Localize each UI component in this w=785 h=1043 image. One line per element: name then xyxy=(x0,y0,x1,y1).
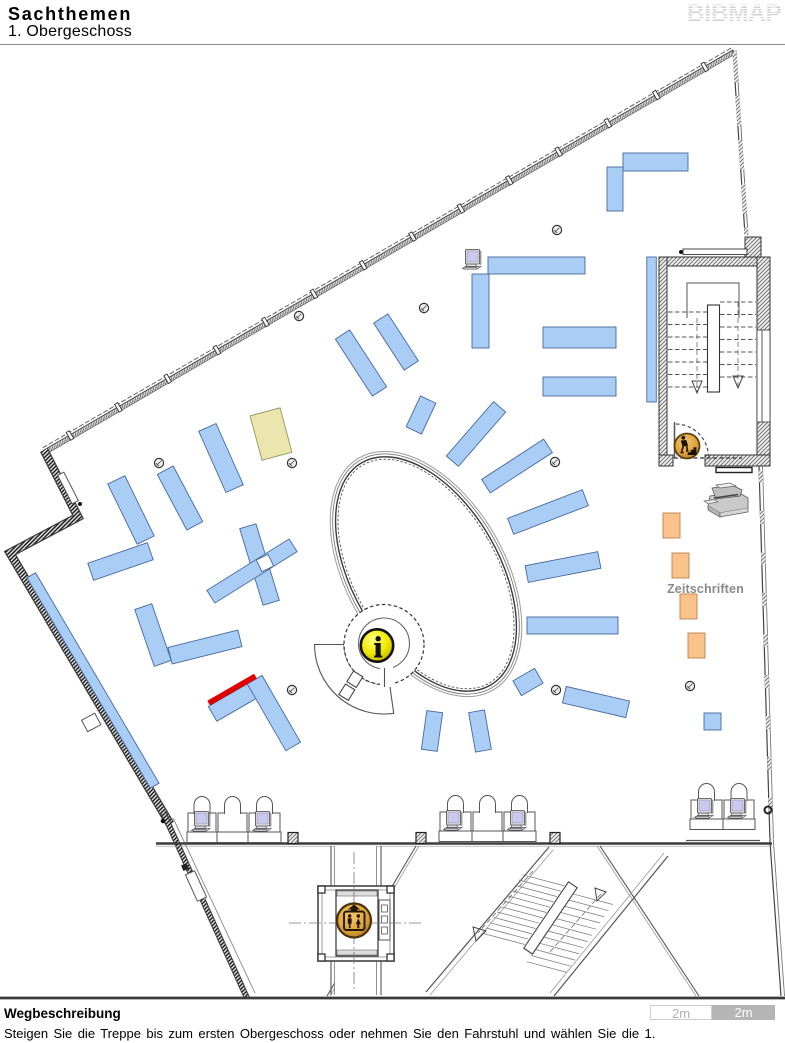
svg-text:i: i xyxy=(374,631,382,664)
